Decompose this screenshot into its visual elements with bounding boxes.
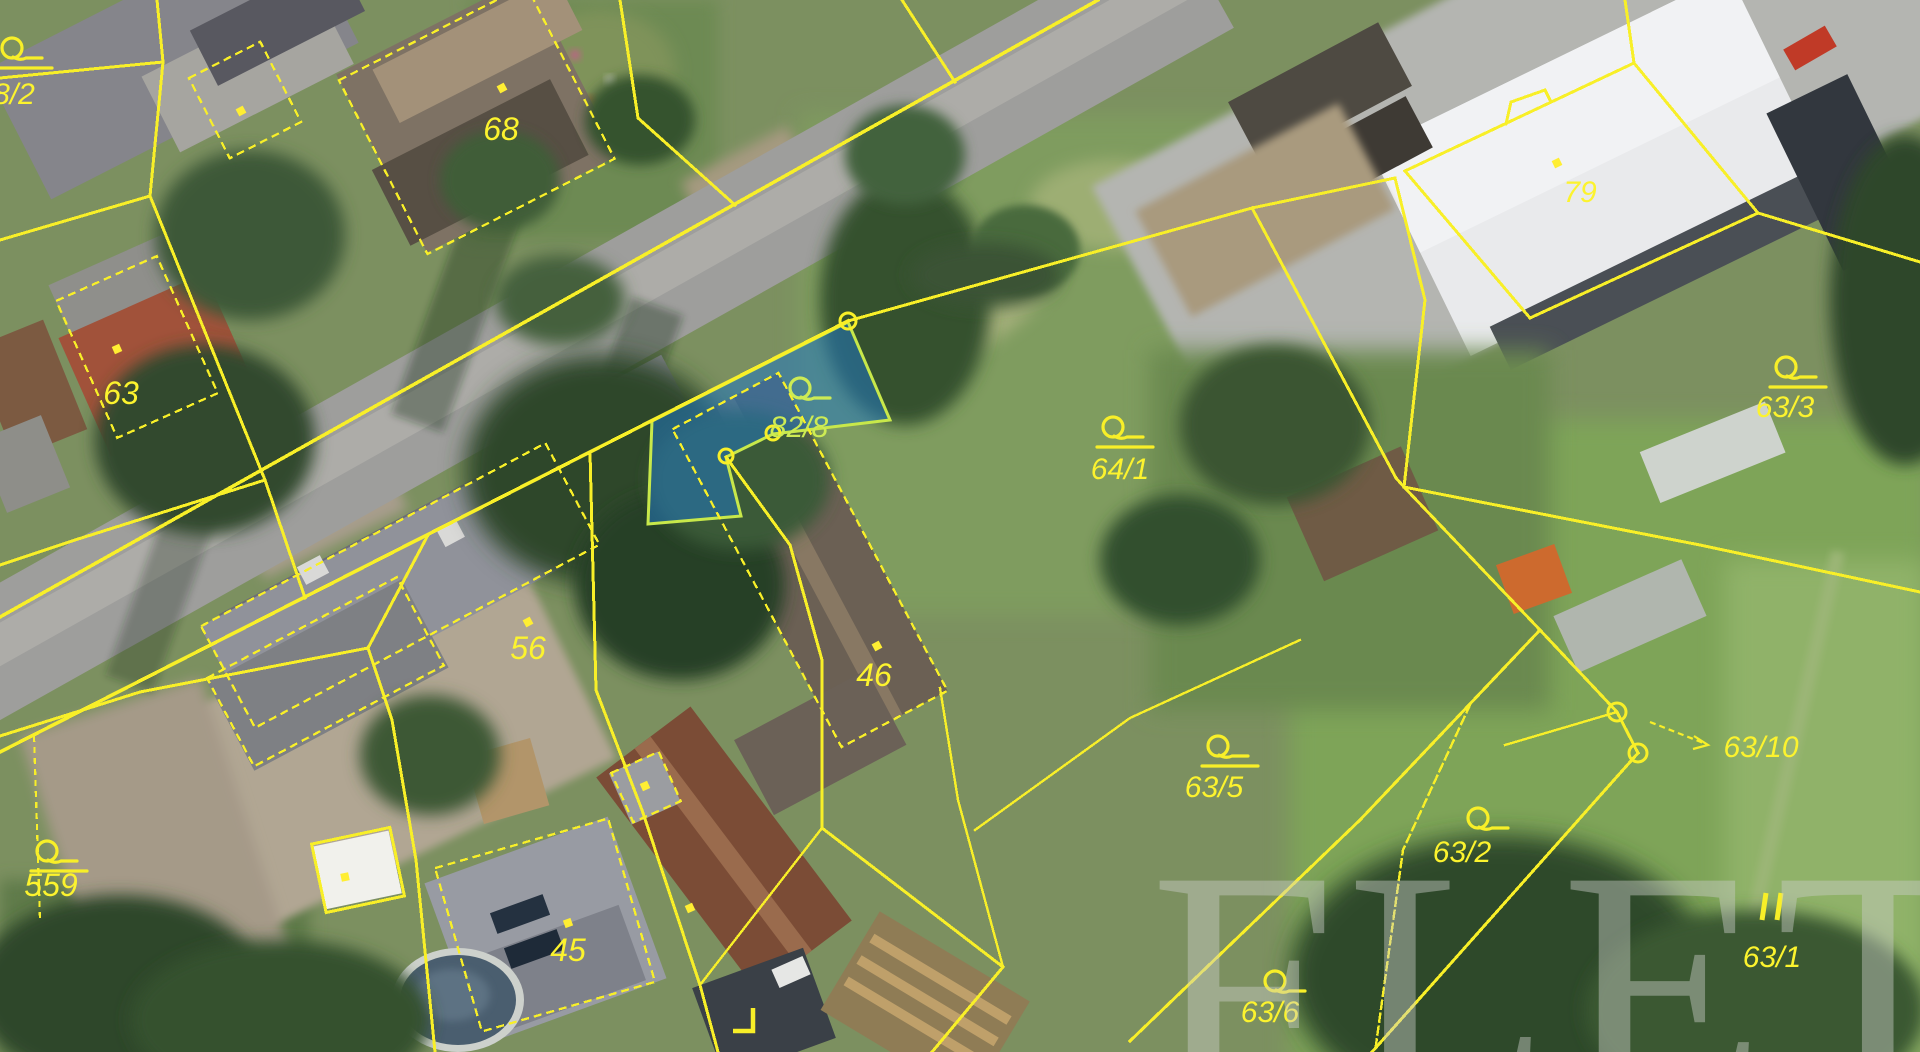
- parcel-label-82-8: 82/8: [770, 411, 829, 444]
- parcel-label-79: 79: [1563, 176, 1597, 209]
- parcel-label-46: 46: [856, 657, 892, 693]
- cadastral-map-viewport[interactable]: 8/2 68 63 79 82/8 64/1 63/3 56 46 63/10 …: [0, 0, 1920, 1052]
- parcel-label-63-3: 63/3: [1756, 391, 1815, 424]
- parcel-label-63-10: 63/10: [1723, 731, 1798, 764]
- parcel-label-559: 559: [24, 867, 78, 903]
- parcel-label-56: 56: [510, 630, 546, 666]
- parcel-label-45: 45: [550, 932, 586, 968]
- parcel-label-63-5: 63/5: [1185, 771, 1244, 804]
- parcel-label-68: 68: [483, 111, 519, 147]
- watermark-text: FLET: [1150, 802, 1920, 1052]
- parcel-label-8-2: 8/2: [0, 78, 35, 111]
- parcel-label-64-1: 64/1: [1091, 453, 1149, 486]
- parcel-label-63: 63: [103, 375, 139, 411]
